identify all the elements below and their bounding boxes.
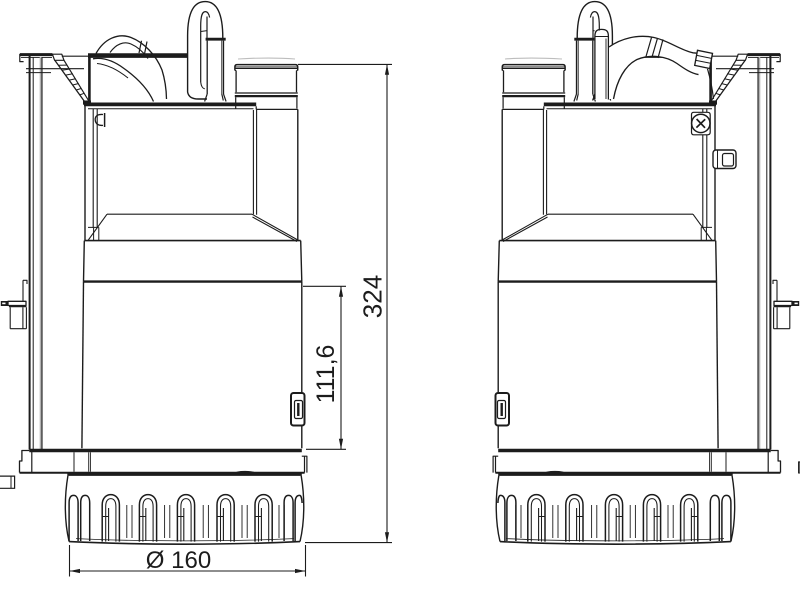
svg-text:Ø 160: Ø 160 [146,547,211,574]
svg-text:324: 324 [358,275,388,318]
svg-text:111,6: 111,6 [312,345,340,404]
